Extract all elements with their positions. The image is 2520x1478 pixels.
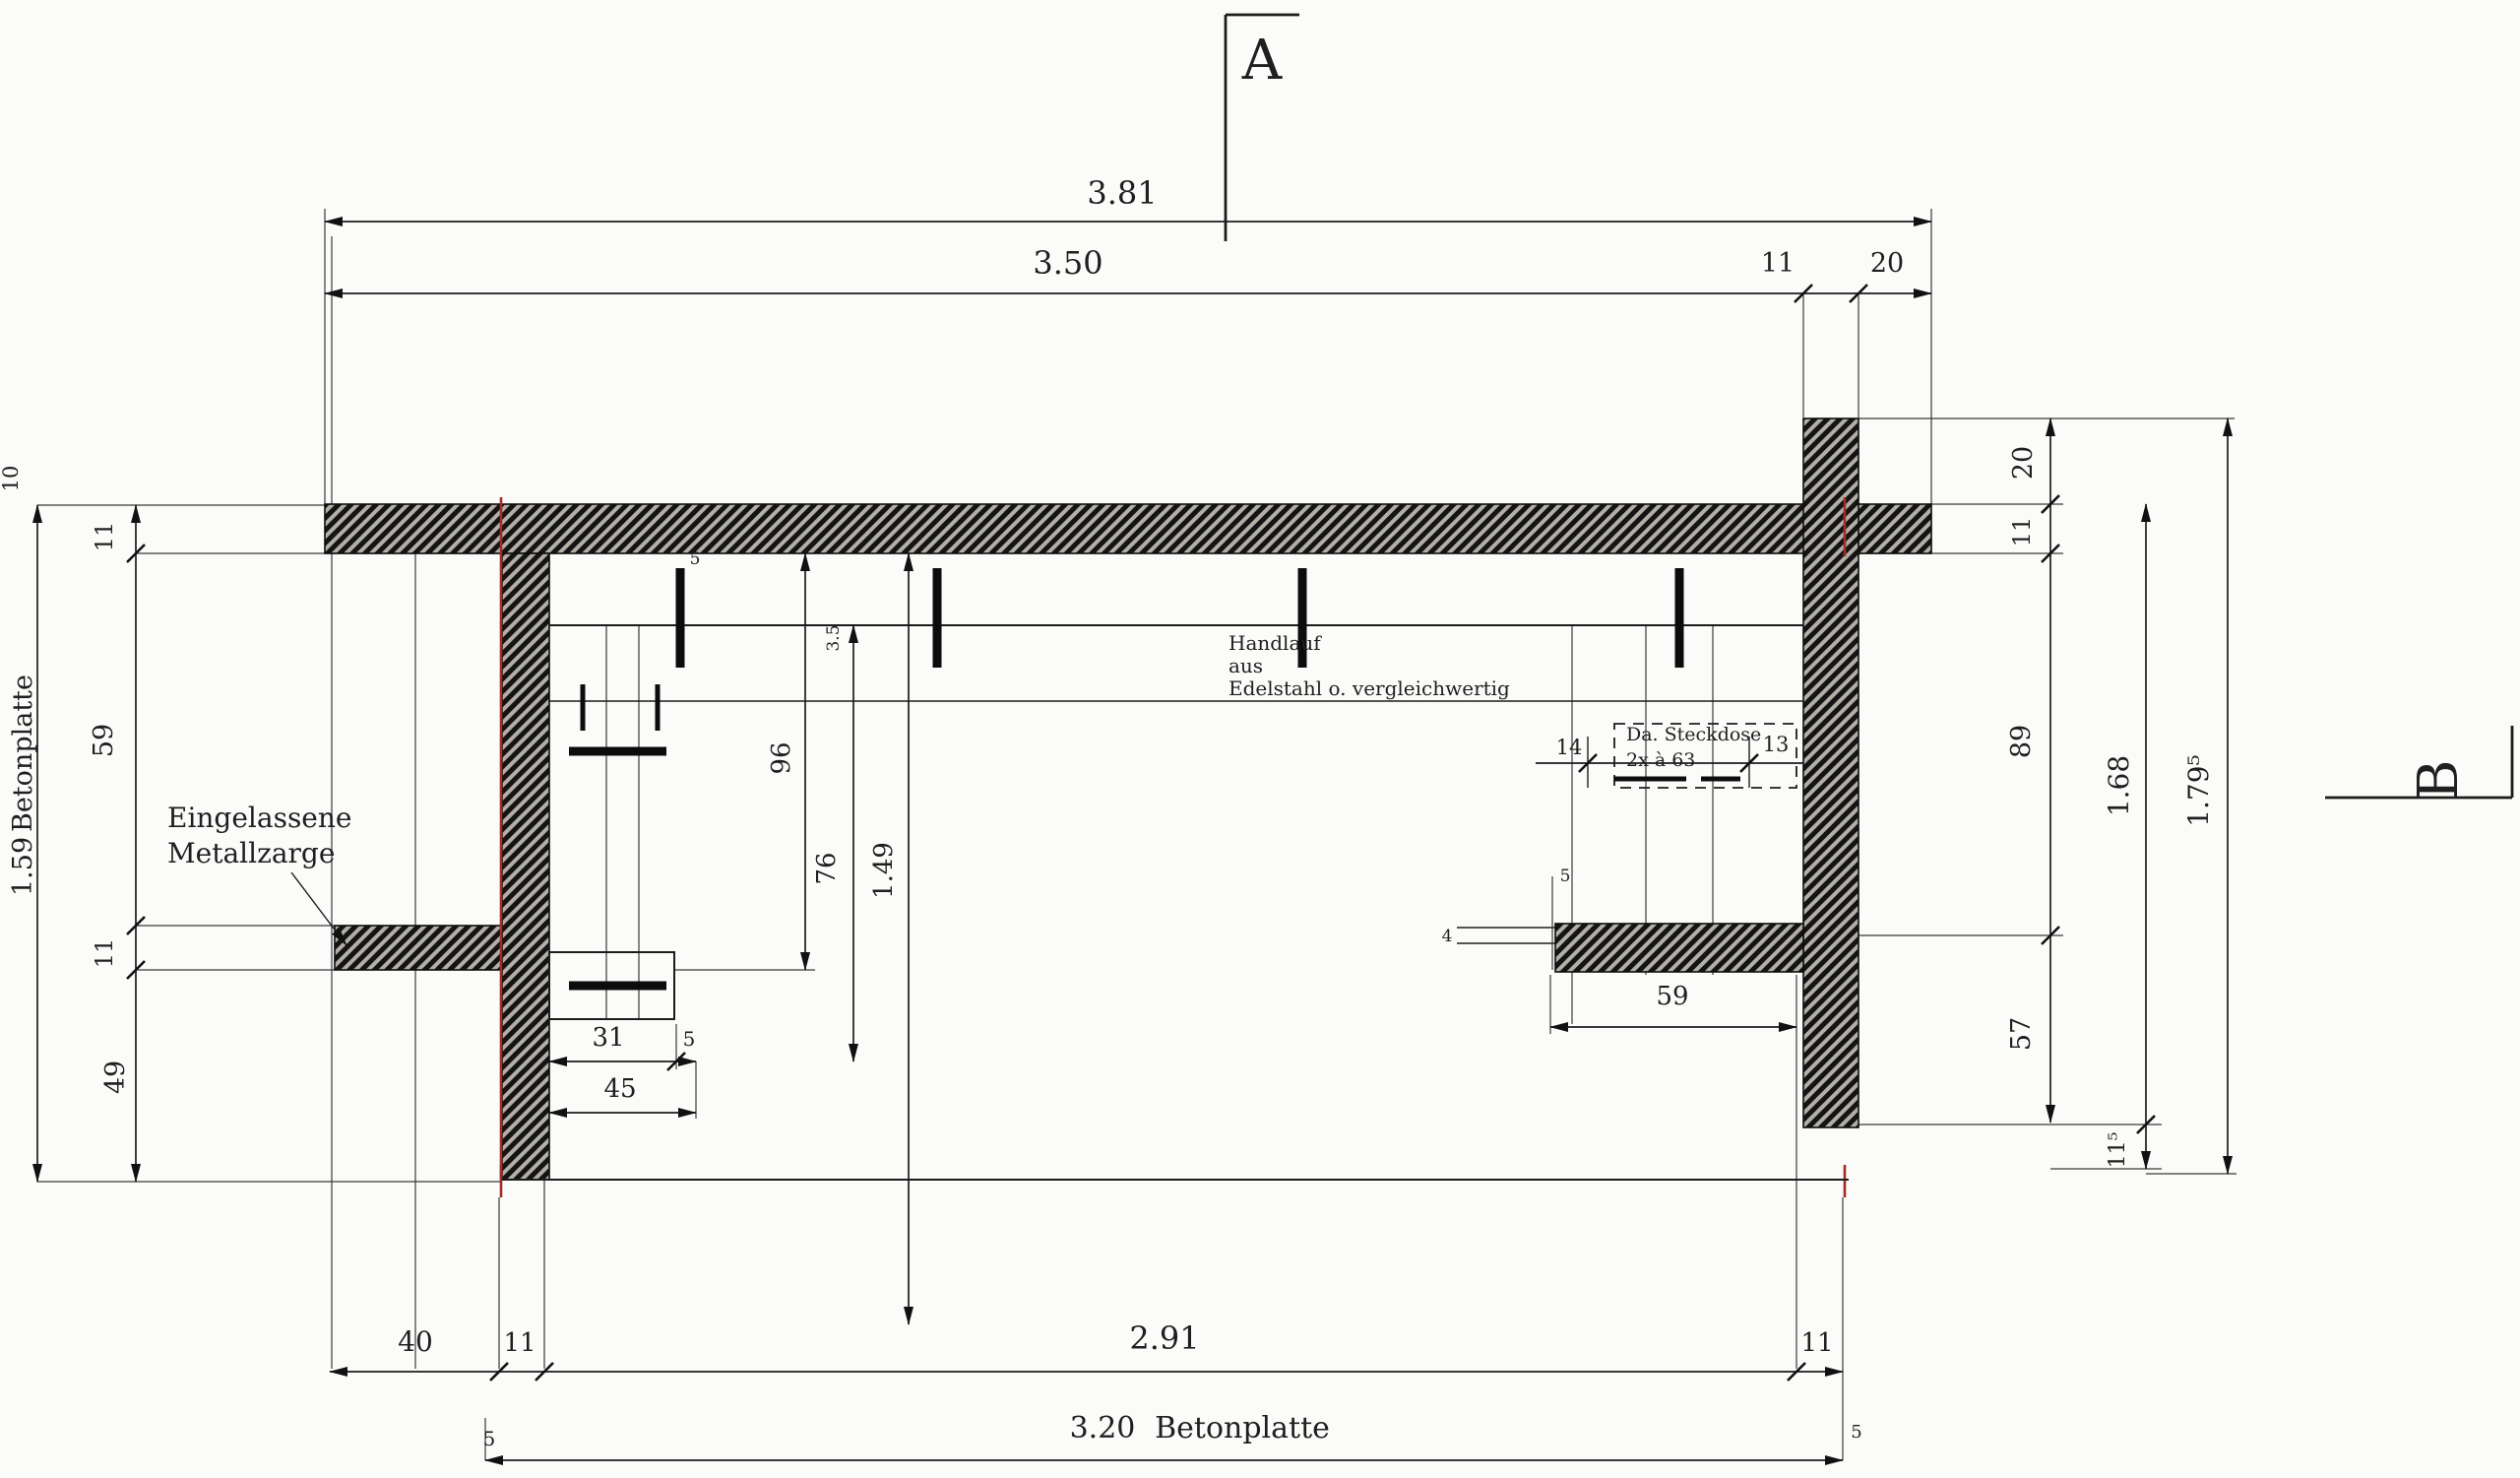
plan-details bbox=[502, 568, 1849, 1180]
dim-door-left-w1: 31 bbox=[592, 1023, 624, 1053]
dim-bottom-seg2: 11 bbox=[503, 1328, 535, 1358]
dim-left-seg3: 11 bbox=[91, 938, 118, 969]
dim-door-right-gap-right: 13 bbox=[1763, 733, 1790, 756]
dim-door-left-h1: 96 bbox=[767, 741, 796, 774]
dim-left-total-value: 1.59 bbox=[8, 837, 38, 896]
annotations: Da. Steckdose 2x à 63 Eingelassene Metal… bbox=[167, 631, 1761, 869]
wall-right-stub bbox=[1555, 924, 1803, 972]
socket-note-line2: 2x à 63 bbox=[1626, 749, 1695, 771]
dim-top-edge: 20 bbox=[1870, 248, 1904, 279]
handrail-note-line2: aus bbox=[1228, 654, 1263, 677]
red-marking-lines bbox=[501, 497, 1845, 1197]
dim-door-left-t1: 3.5 bbox=[824, 624, 844, 651]
dim-right-outer-total: 1.79⁵ bbox=[2182, 754, 2215, 827]
dim-bottom-sup-left: 5 bbox=[483, 1427, 496, 1450]
dim-bottom-seg1: 40 bbox=[398, 1325, 433, 1358]
wall-top-band bbox=[325, 504, 1931, 553]
drawing-sheet: A B 3 bbox=[0, 0, 2520, 1478]
dim-door-right-t2: 5 bbox=[1560, 867, 1571, 886]
dim-bottom-total-value: 3.20 bbox=[1070, 1411, 1136, 1446]
wall-left-column bbox=[502, 553, 549, 1180]
dim-left-offset: 10 bbox=[0, 466, 23, 492]
frame-note-line1: Eingelassene bbox=[167, 802, 351, 834]
dim-door-left-h2: 76 bbox=[812, 852, 842, 884]
dim-door-right-gap-left: 14 bbox=[1556, 736, 1583, 759]
dim-right-inner-total: 1.68 bbox=[2103, 755, 2135, 816]
dim-left-seg4: 49 bbox=[100, 1060, 131, 1094]
section-b-label: B bbox=[2407, 759, 2471, 800]
dim-door-left-w3: 45 bbox=[603, 1074, 636, 1104]
frame-note-line2: Metallzarge bbox=[167, 837, 335, 869]
dim-bottom-total-word: Betonplatte bbox=[1155, 1411, 1330, 1446]
dim-right-seg-b: 57 bbox=[2006, 1017, 2037, 1051]
dim-door-left-t2: 5 bbox=[690, 549, 701, 569]
dimension-lines bbox=[37, 222, 2228, 1460]
dim-door-right-span: 59 bbox=[1656, 982, 1688, 1011]
handrail-note-line3: Edelstahl o. vergleichwertig bbox=[1228, 676, 1510, 700]
construction-lines bbox=[37, 209, 2236, 1460]
dim-top-wall: 11 bbox=[1761, 248, 1795, 279]
dim-bottom-sup-right: 5 bbox=[1851, 1422, 1861, 1443]
dim-top-total: 3.81 bbox=[1087, 174, 1157, 212]
dim-door-left-w2: 5 bbox=[683, 1027, 696, 1051]
dim-left-seg1: 11 bbox=[91, 522, 118, 552]
floor-plan-drawing: A B 3 bbox=[0, 0, 2520, 1478]
dim-bottom-span: 2.91 bbox=[1129, 1319, 1199, 1357]
dim-left-seg2: 59 bbox=[89, 724, 119, 757]
dim-bottom-seg3: 11 bbox=[1800, 1328, 1833, 1358]
dim-top-inner: 3.50 bbox=[1033, 244, 1102, 282]
wall-right-column bbox=[1803, 418, 1858, 1127]
dim-door-right-t1: 4 bbox=[1442, 927, 1453, 946]
socket-note-line1: Da. Steckdose bbox=[1626, 724, 1761, 745]
dim-left-total-word: Betonplatte bbox=[8, 675, 38, 832]
dim-right-seg-wall: 11 bbox=[2008, 517, 2036, 547]
dim-door-left-h3: 1.49 bbox=[869, 842, 899, 899]
leader-line bbox=[291, 872, 346, 945]
dim-right-seg-c: 11⁵ bbox=[2106, 1132, 2130, 1169]
dim-right-seg-a: 89 bbox=[2006, 725, 2037, 758]
dim-right-seg-top: 20 bbox=[2008, 446, 2039, 480]
section-a-label: A bbox=[1241, 29, 1283, 93]
wall-left-stub bbox=[335, 926, 502, 970]
handrail-note-line1: Handlauf bbox=[1228, 631, 1322, 655]
walls bbox=[325, 418, 1931, 1180]
